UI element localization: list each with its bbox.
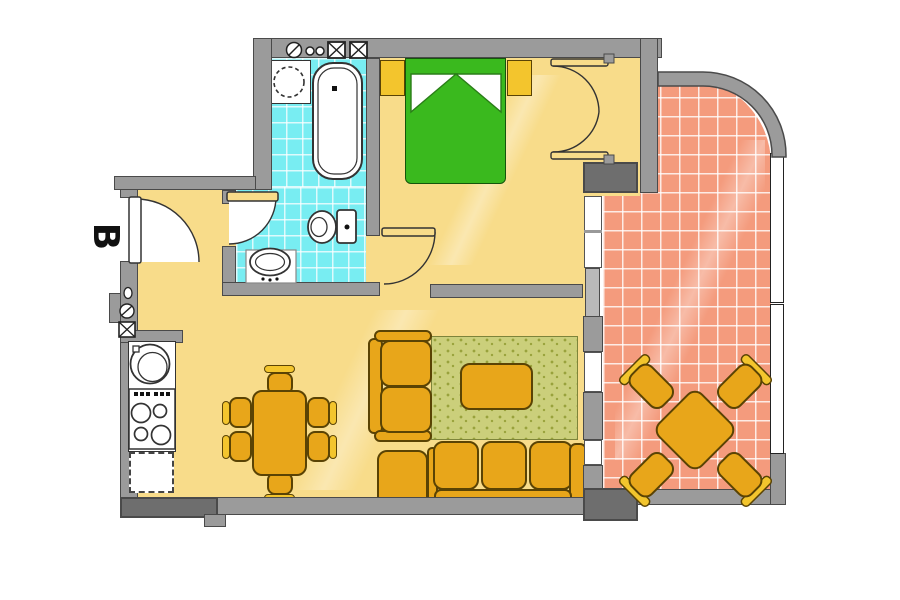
plan-overlay [0,0,900,600]
outlet-icon-1 [306,47,314,55]
terrace-chair-nw [618,353,680,415]
terrace-chair-ne [711,353,773,415]
pillow-left [411,74,456,112]
washing-machine-drum [274,67,304,97]
bathroom-door[interactable] [227,192,278,244]
shaft-box-left-icon [119,322,135,337]
stove [129,389,175,449]
shaft-box-icon-1 [328,42,345,58]
peephole-icon [124,288,132,299]
outlet-icon-2 [316,47,324,55]
toilet [308,210,356,243]
kitchen-sink [131,345,170,384]
terrace-wall-curved [658,72,786,157]
bedroom-door[interactable] [382,228,435,284]
terrace-chair-se [711,446,773,508]
wardrobe-double-doors[interactable] [551,54,614,164]
unit-label: B [85,223,126,250]
entrance-door[interactable] [129,197,199,263]
pillow-right [456,74,501,112]
vent-circle-left-icon [120,304,134,318]
shaft-box-icon-2 [350,42,367,58]
terrace-chair-sw [618,446,680,508]
bathtub [313,63,362,179]
vent-circle-top-icon [287,43,302,58]
floor-plan: B [0,0,900,600]
pedestal-sink [246,249,296,284]
